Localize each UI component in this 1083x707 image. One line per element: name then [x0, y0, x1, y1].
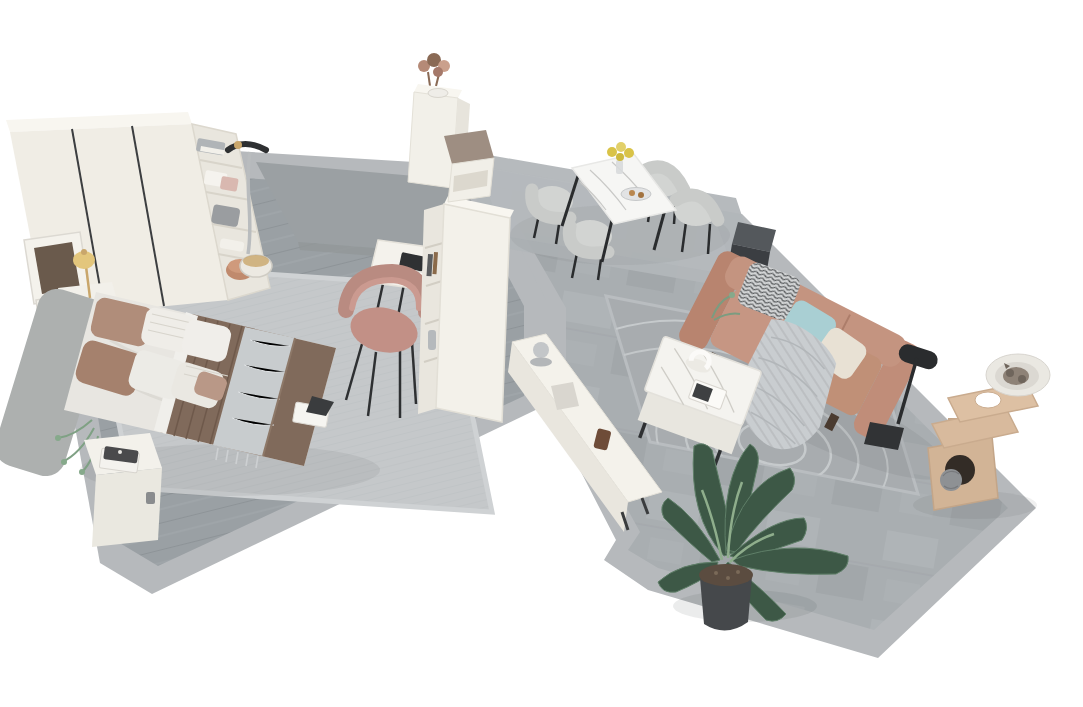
- dried-flowers: [418, 53, 450, 86]
- apartment-3d-render: [0, 0, 1083, 707]
- shoe-bench: [444, 130, 494, 202]
- render-canvas: [0, 0, 1083, 707]
- sleeping-cat: [1003, 367, 1029, 385]
- nightstand-books: [84, 433, 162, 547]
- cat-bed: [986, 354, 1050, 396]
- entry-cabinet: [408, 53, 494, 202]
- bookshelf-front: [436, 204, 510, 422]
- bookshelf-divider: [418, 196, 514, 422]
- cat-toy-ball: [940, 469, 962, 491]
- serving-plate: [621, 188, 651, 201]
